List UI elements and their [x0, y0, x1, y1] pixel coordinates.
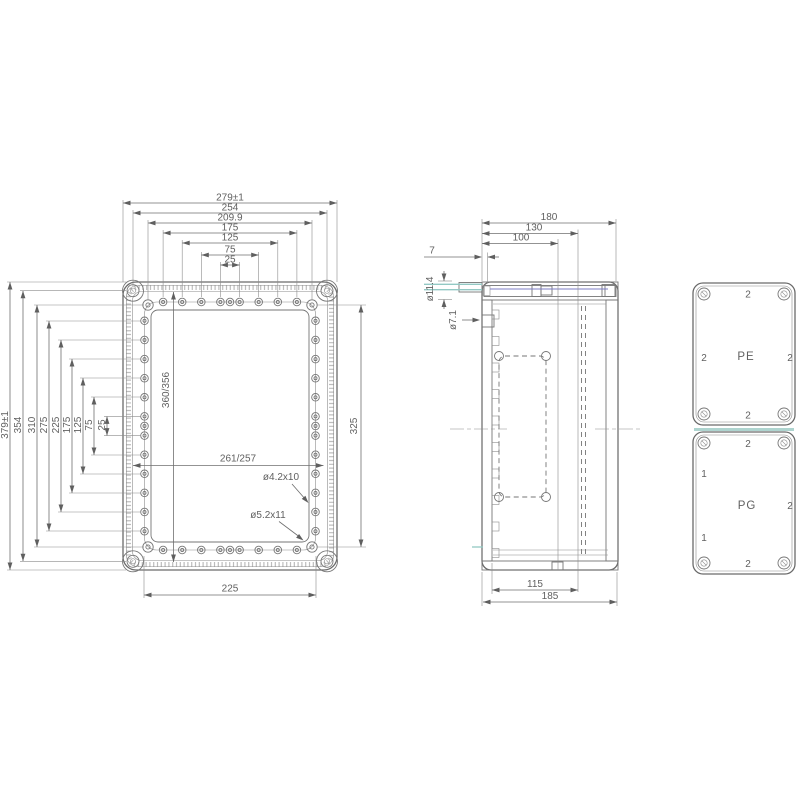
dim-label-side-115: 115 [527, 579, 543, 590]
dim-arrowhead [133, 211, 141, 216]
dim-label-inner-width: 261/257 [220, 454, 257, 465]
dim-arrowhead [609, 221, 617, 226]
hole-circle [143, 300, 153, 310]
dim-arrowhead [133, 463, 141, 468]
pg-count-right: 2 [787, 501, 793, 512]
dim-arrowhead [316, 463, 324, 468]
enclosure-lid-outline [123, 282, 337, 570]
screw-slot [702, 412, 706, 416]
dim-arrowhead [47, 524, 52, 532]
dim-arrowhead [488, 255, 496, 260]
dim-label-left-0: 379±1 [0, 411, 11, 439]
dim-label-top-6: 25 [224, 255, 236, 266]
wall-rib [492, 310, 499, 319]
dim-arrowhead [320, 211, 328, 216]
pg-count-left-lower: 1 [701, 533, 707, 544]
screw-slot [702, 292, 706, 296]
screw-slot [702, 441, 706, 445]
hole-circle [310, 545, 314, 549]
dim-arrowhead [47, 321, 52, 329]
dim-arrowhead [182, 241, 190, 246]
seal-flange-band [129, 288, 332, 565]
pg-count-top: 2 [745, 439, 751, 450]
dim-arrowhead [70, 359, 75, 367]
dim-arrowhead [201, 253, 209, 258]
dim-arrowhead [442, 300, 447, 308]
screw-hole-band [145, 302, 316, 550]
technical-drawing-canvas: 279±1 254 209.9 175 125 75 25 379±1 354 … [0, 0, 800, 800]
dim-label-left-8: 25 [97, 419, 108, 431]
wall-rib [492, 522, 499, 531]
screw-slot [702, 561, 706, 565]
dim-label-bottom-span: 225 [222, 584, 239, 595]
pe-count-right: 2 [787, 353, 793, 364]
dim-arrowhead [59, 340, 64, 348]
dim-arrowhead [92, 397, 97, 405]
dim-arrowhead [359, 305, 364, 313]
dim-label-side-100: 100 [513, 233, 530, 244]
dim-label-left-4: 225 [51, 416, 62, 433]
dim-label-side-180: 180 [541, 212, 558, 223]
channel-screw-head [532, 285, 541, 297]
dim-label-left-7: 75 [84, 419, 95, 431]
wall-rib [492, 469, 499, 478]
screw-slot [782, 292, 786, 296]
dim-arrowhead [473, 318, 481, 323]
wall-rib [492, 337, 499, 346]
dim-arrowhead [21, 291, 26, 299]
hole-circle [310, 303, 314, 307]
dim-label-boss-dia: ø7.1 [448, 310, 459, 330]
dim-arrowhead [305, 221, 313, 226]
dim-arrowhead [21, 554, 26, 562]
flange-inner-edge [133, 292, 328, 561]
dim-label-gland-dia: ø11.4 [425, 276, 436, 301]
dim-arrowhead [483, 600, 491, 605]
dim-arrowhead [309, 593, 317, 598]
dim-arrowhead [475, 255, 483, 260]
bottom-wall-hatch [482, 561, 618, 570]
dim-arrowhead [81, 378, 86, 386]
dim-arrowhead [70, 486, 75, 494]
left-wall-hatch [482, 300, 492, 561]
dim-label-inner-length: 360/356 [161, 371, 172, 408]
channel-screw-body [541, 286, 552, 295]
mounting-plate-dashed [499, 356, 546, 497]
dim-arrowhead [35, 540, 40, 548]
dim-arrowhead [482, 231, 490, 236]
hole-circle [495, 352, 504, 361]
dim-arrowhead [442, 274, 447, 282]
dim-arrowhead [8, 563, 13, 571]
dim-arrowhead [359, 540, 364, 548]
hole-circle [542, 493, 551, 502]
pg-count-left-upper: 1 [701, 469, 707, 480]
pe-plate-label: PE [737, 351, 754, 363]
dim-arrowhead [8, 282, 13, 290]
dim-arrowhead [171, 292, 176, 300]
dim-label-lid-lip: 7 [429, 246, 435, 257]
dim-arrowhead [144, 593, 152, 598]
pe-count-bottom: 2 [745, 411, 751, 422]
dim-arrowhead [482, 221, 490, 226]
hole-circle [146, 303, 150, 307]
note-corner-hole: ø5.2x11 [250, 510, 286, 521]
lid-recess-edge [151, 310, 309, 542]
dim-label-right-span: 325 [349, 417, 360, 434]
dim-arrowhead [251, 253, 259, 258]
dim-label-left-5: 175 [62, 416, 73, 433]
channel-end-fitting [602, 285, 615, 297]
wall-rib [492, 363, 499, 372]
pg-plate-label: PG [738, 500, 757, 512]
bottom-boss-hatch [552, 562, 563, 570]
pg-count-bottom: 2 [745, 559, 751, 570]
drawing-geometry [7, 200, 795, 606]
dim-arrowhead [123, 201, 131, 206]
hole-circle [143, 542, 153, 552]
leader-line [279, 522, 301, 539]
dim-arrowhead [610, 600, 618, 605]
pe-count-top: 2 [745, 290, 751, 301]
enclosure-section-outline [482, 282, 618, 570]
dim-arrowhead [330, 201, 338, 206]
dim-label-left-6: 125 [73, 416, 84, 433]
hole-circle [542, 352, 551, 361]
dim-arrowhead [92, 448, 97, 456]
dim-arrowhead [59, 505, 64, 513]
hole-circle [146, 545, 150, 549]
dim-label-side-185: 185 [542, 591, 559, 602]
dim-arrowhead [492, 588, 500, 593]
screw-slot [782, 441, 786, 445]
wall-rib [492, 416, 499, 425]
dim-arrowhead [81, 467, 86, 475]
hole-circle [307, 300, 317, 310]
dim-arrowhead [148, 221, 156, 226]
right-wall-hatch [606, 300, 618, 561]
dim-label-left-1: 354 [13, 416, 24, 433]
dim-arrowhead [571, 231, 579, 236]
dim-arrowhead [482, 241, 490, 246]
dim-arrowhead [571, 588, 579, 593]
wall-rib [492, 443, 499, 452]
dim-arrowhead [171, 555, 176, 563]
dim-label-left-3: 275 [39, 416, 50, 433]
dim-label-top-4: 125 [222, 233, 239, 244]
pe-count-left: 2 [701, 353, 707, 364]
dim-arrowhead [270, 241, 278, 246]
note-pilot-hole: ø4.2x10 [263, 472, 300, 483]
dim-arrowhead [163, 231, 171, 236]
hole-circle [307, 542, 317, 552]
lid-section-hatch [482, 282, 618, 300]
dim-arrowhead [289, 231, 297, 236]
dim-arrowhead [35, 305, 40, 313]
lid-edge-inner [127, 286, 334, 567]
screw-slot [782, 412, 786, 416]
screw-slot [782, 561, 786, 565]
wall-rib [492, 390, 499, 399]
dim-arrowhead [551, 241, 559, 246]
dim-label-left-2: 310 [27, 416, 38, 433]
